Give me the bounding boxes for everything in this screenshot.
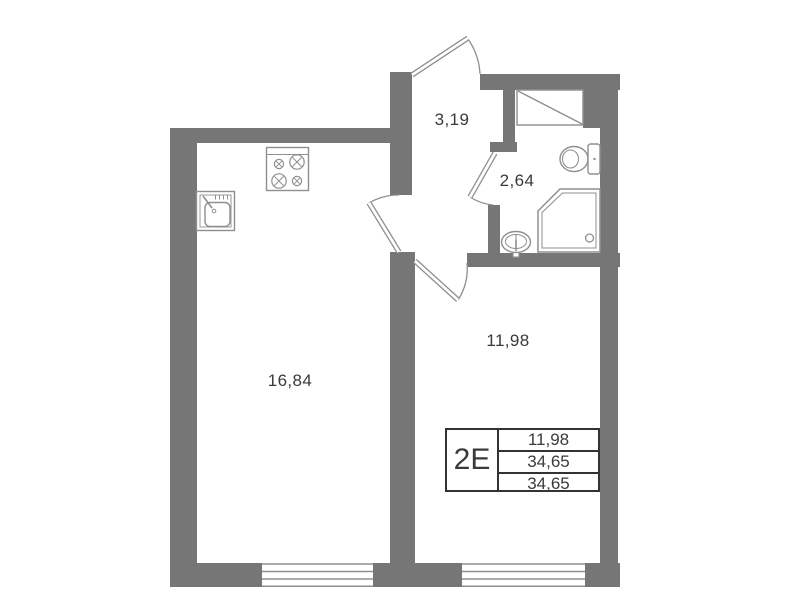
wall-bath-west-lower bbox=[488, 205, 500, 258]
legend-living-area-value: 11,98 bbox=[499, 430, 598, 450]
stove-icon bbox=[267, 148, 309, 191]
area-label-living-kitchen: 16,84 bbox=[268, 371, 313, 391]
living-room-door-icon bbox=[369, 195, 399, 252]
area-label-room: 11,98 bbox=[486, 331, 529, 351]
wall-top-left-room bbox=[170, 128, 410, 143]
wall-bath-bottom bbox=[467, 253, 620, 267]
wall-bottom-seg1 bbox=[170, 563, 262, 587]
shower-icon bbox=[538, 189, 600, 252]
door-swing-arc bbox=[468, 39, 480, 74]
vent-shaft-icon bbox=[517, 90, 583, 125]
legend-apartment-type: 2Е bbox=[447, 430, 499, 490]
area-label-bathroom: 2,64 bbox=[500, 171, 535, 191]
legend-reduced-total-area-value: 34,65 bbox=[499, 450, 598, 472]
room-door-icon bbox=[415, 261, 467, 300]
wall-shaft-pier bbox=[583, 90, 600, 128]
wall-right bbox=[600, 74, 618, 587]
wall-bottom-pier bbox=[373, 563, 462, 587]
door-swing-arc bbox=[470, 197, 493, 205]
wall-bath-west-stub bbox=[490, 142, 517, 152]
area-label-hallway: 3,19 bbox=[435, 110, 470, 130]
door-swing-arc bbox=[458, 263, 467, 300]
legend-total-area-value: 34,65 bbox=[499, 472, 598, 494]
toilet-icon bbox=[560, 144, 600, 174]
floor-plan-canvas: 16,84 11,98 3,19 2,64 2Е 11,98 34,65 34,… bbox=[0, 0, 799, 600]
wall-hall-west-upper bbox=[390, 72, 412, 195]
wall-top-right bbox=[480, 74, 620, 90]
legend-table: 2Е 11,98 34,65 34,65 bbox=[445, 428, 600, 492]
entrance-door-icon bbox=[412, 38, 480, 75]
window-left-icon bbox=[262, 564, 373, 586]
door-swing-arc bbox=[369, 195, 399, 203]
wall-middle bbox=[390, 252, 415, 563]
kitchen-sink-icon bbox=[197, 192, 235, 231]
walls bbox=[170, 72, 620, 587]
legend-values-column: 11,98 34,65 34,65 bbox=[499, 430, 598, 490]
wall-left bbox=[170, 128, 197, 587]
window-right-icon bbox=[462, 564, 585, 586]
floor-plan-drawing bbox=[0, 0, 799, 600]
bathroom-door-icon bbox=[470, 153, 495, 205]
